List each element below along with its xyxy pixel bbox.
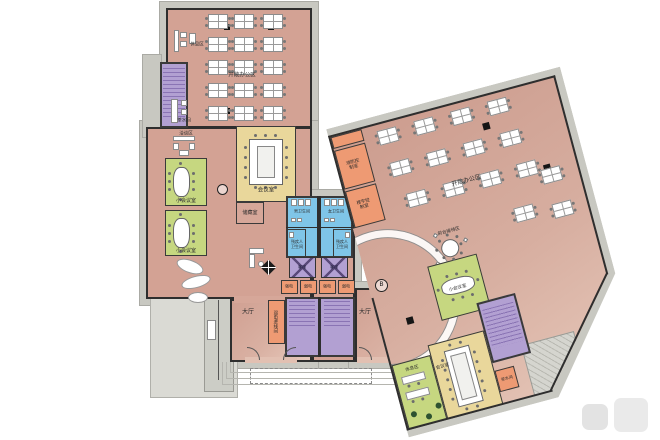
stool [463, 237, 468, 242]
stairwell-divider [318, 297, 321, 357]
desk-cluster [513, 203, 536, 223]
wc-sink [291, 218, 296, 222]
stair-treads [324, 301, 350, 329]
desk-cluster [208, 14, 228, 29]
chair-dot [264, 134, 267, 137]
coffee-table [179, 150, 189, 156]
wc-sink [297, 218, 302, 222]
sofa [180, 41, 187, 47]
floor-plan: 消防控制室 楼宇控制室 开敞办公区 前台接待区 小会议室 会议室 休息区 茶水间… [0, 0, 660, 440]
chair-dot [168, 188, 171, 191]
wc-stall [324, 199, 330, 206]
chair-dot [168, 232, 171, 235]
chair-dot [254, 134, 257, 137]
room-label: 洽谈区 [179, 130, 193, 135]
chair-dot [192, 180, 195, 183]
room-label: 开敞办公区 [228, 73, 256, 80]
wc-sink [330, 218, 335, 222]
chair-dot [455, 235, 459, 239]
room-label: 弱电 [342, 285, 350, 290]
chair-dot [192, 172, 195, 175]
meeting-table [173, 167, 190, 197]
room-label: 客梯 [330, 266, 338, 271]
desk-cluster [234, 37, 254, 52]
room-label: 休息区 [190, 41, 204, 46]
desk-cluster [263, 106, 283, 121]
room-label: 强电 [285, 285, 293, 290]
sofa [173, 143, 179, 150]
desk-cluster [450, 106, 473, 126]
location-marker-b: B [375, 279, 388, 292]
sofa [180, 32, 187, 38]
room-label: 男卫生间 [294, 210, 310, 215]
chair-dot [192, 224, 195, 227]
stair-treads [289, 301, 315, 329]
chair-dot [179, 162, 182, 165]
room-label: 小会议室 [176, 248, 196, 254]
desk-cluster [499, 128, 522, 148]
room-label: 会议室 [258, 188, 275, 195]
chair-dot [285, 176, 288, 179]
chair-dot [244, 146, 247, 149]
desk-cluster [208, 83, 228, 98]
desk-cluster [426, 148, 449, 168]
chair-dot [274, 134, 277, 137]
sofa [174, 30, 179, 52]
wc-stall [331, 199, 337, 206]
wc-stall [291, 199, 297, 206]
pantry-fixture [181, 109, 187, 115]
chair-dot [168, 180, 171, 183]
desk-cluster [487, 97, 510, 117]
room-label: 残疾人卫生间 [335, 240, 349, 250]
chair-dot [192, 232, 195, 235]
lounge-seat [188, 292, 208, 303]
chair-dot [179, 213, 182, 216]
room-label: 大厅 [359, 309, 371, 316]
ramp-arrow [218, 300, 219, 380]
desk-cluster [263, 14, 283, 29]
wc-toilet [289, 232, 294, 238]
desk-cluster [208, 60, 228, 75]
desk-cluster [234, 83, 254, 98]
chair-dot [285, 166, 288, 169]
chair-dot [459, 251, 463, 255]
desk-cluster [406, 189, 429, 209]
room-label: 女卫生间 [328, 210, 344, 215]
reference-marker [217, 184, 228, 195]
room-label: 强电 [323, 285, 331, 290]
chair-dot [438, 239, 442, 243]
sofa [173, 136, 195, 141]
chair-dot [254, 186, 257, 189]
desk-cluster [263, 37, 283, 52]
wc-stall [298, 199, 304, 206]
room-label: 客梯 [298, 266, 306, 271]
room-label: 弱电 [304, 285, 312, 290]
watermark-shape [614, 398, 648, 432]
sofa [189, 143, 195, 150]
desk-cluster [234, 106, 254, 121]
desk-cluster [389, 158, 412, 178]
chair-dot [192, 240, 195, 243]
desk-cluster [551, 199, 574, 219]
pantry-fixture [181, 100, 187, 106]
desk-cluster [479, 169, 502, 189]
room-label: 弱电进线间 [273, 311, 278, 334]
chair-dot [192, 188, 195, 191]
conference-table-inner [257, 146, 275, 178]
chair-dot [168, 172, 171, 175]
wc-stall [338, 199, 344, 206]
desk-cluster [516, 159, 539, 179]
wc-toilet [345, 232, 350, 238]
desk-cluster [208, 106, 228, 121]
desk-cluster [413, 116, 436, 136]
chair-dot [244, 166, 247, 169]
desk-cluster [208, 37, 228, 52]
chair-dot [285, 146, 288, 149]
room-label: 储藏室 [242, 210, 257, 216]
ramp-detail [207, 320, 216, 340]
restroom-wall [286, 227, 353, 228]
watermark-logo [582, 396, 656, 436]
reception-desk [249, 254, 255, 268]
desk-cluster [376, 126, 399, 146]
chair-dot [244, 176, 247, 179]
room-label: 大厅 [242, 309, 254, 316]
room-label: 开敞办公区 [451, 174, 482, 189]
meeting-table [173, 218, 190, 248]
wc-stall [305, 199, 311, 206]
wc-sink [324, 218, 329, 222]
room-label: 残疾人卫生间 [290, 240, 304, 250]
desk-cluster [263, 83, 283, 98]
watermark-shape [582, 404, 608, 430]
room-label: 小会议室 [176, 198, 196, 204]
chair-dot [168, 240, 171, 243]
column [482, 122, 491, 131]
chair-dot [459, 242, 463, 246]
chair-dot [168, 224, 171, 227]
desk-cluster [234, 14, 254, 29]
chair-dot [285, 156, 288, 159]
desk-cluster [463, 138, 486, 158]
desk-cluster [263, 60, 283, 75]
exterior-balcony [142, 54, 162, 138]
room-label: 茶水间 [177, 117, 191, 122]
chair-dot [244, 156, 247, 159]
